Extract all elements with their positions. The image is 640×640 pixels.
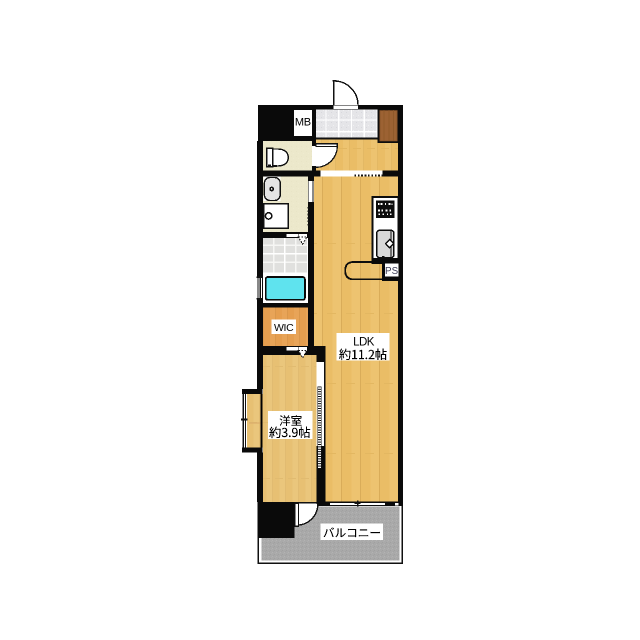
- svg-text:LDK: LDK: [353, 337, 375, 349]
- svg-text:WIC: WIC: [274, 322, 294, 334]
- svg-text:PS: PS: [385, 266, 399, 277]
- svg-text:MB: MB: [295, 117, 311, 129]
